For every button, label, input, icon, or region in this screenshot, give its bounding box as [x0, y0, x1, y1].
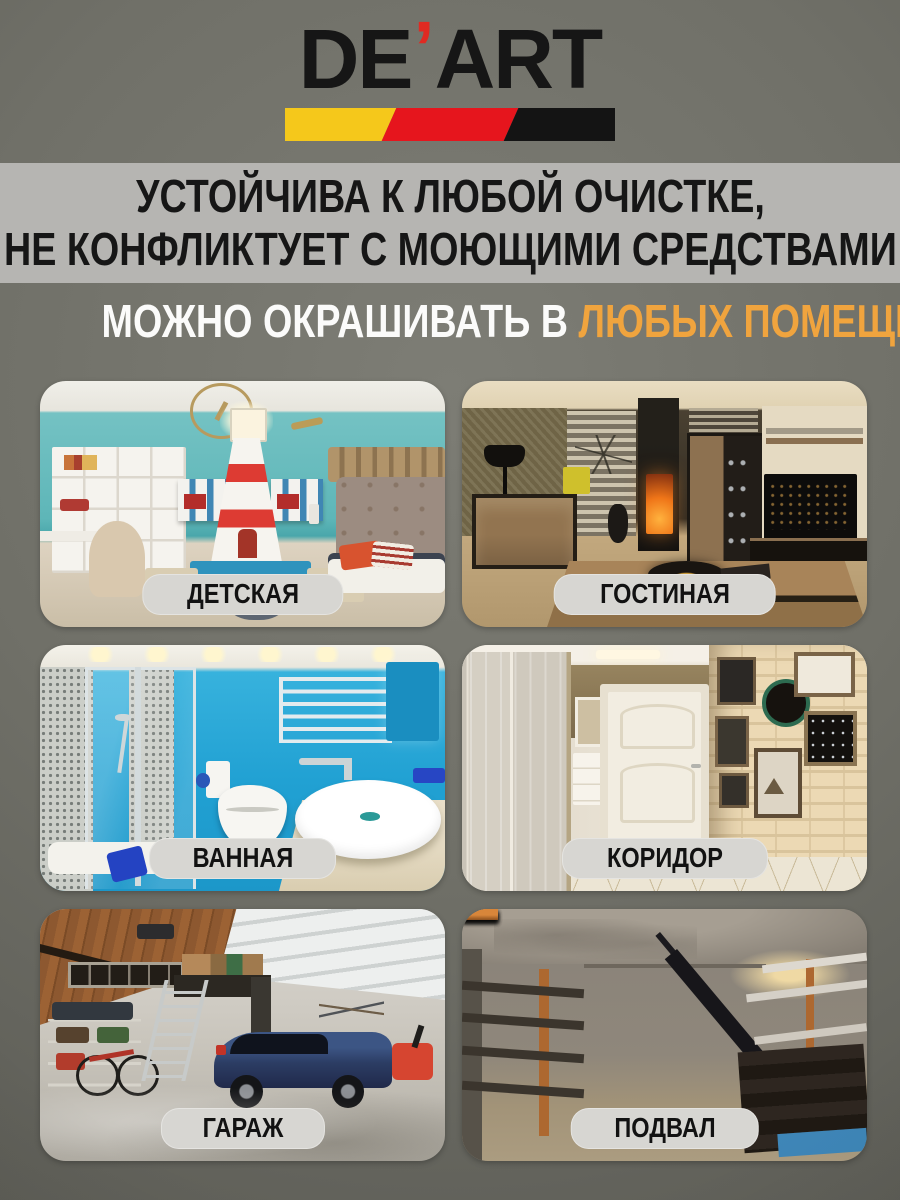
- logo-apostrophe: ’: [413, 15, 432, 83]
- brand-header: DE’ART: [0, 22, 900, 141]
- tv-stand: [750, 541, 867, 561]
- room-card-garage: ГАРАЖ: [40, 909, 445, 1161]
- go-flag-left: [184, 494, 206, 509]
- room-label: ГОСТИНАЯ: [600, 579, 730, 610]
- table-lamp: [484, 445, 525, 467]
- room-card-basement: ПОДВАЛ: [462, 909, 867, 1161]
- stripe-red-segment: [382, 108, 519, 141]
- ceiling-light: [596, 650, 661, 659]
- ceiling-lights: [72, 647, 412, 662]
- towel-right: [413, 768, 445, 783]
- room-label: ГАРАЖ: [202, 1113, 283, 1144]
- rooms-grid: ДЕТСКАЯ: [40, 381, 867, 1161]
- gear-box: [56, 1027, 88, 1042]
- room-label-pill: ПОДВАЛ: [570, 1108, 759, 1149]
- room-label: ДЕТСКАЯ: [186, 579, 298, 610]
- picture-frame: [804, 711, 857, 766]
- sideboard: [472, 494, 577, 568]
- room-card-bathroom: ВАННАЯ: [40, 645, 445, 891]
- fireplace-fire: [646, 474, 672, 533]
- door-panel-bottom: [620, 763, 695, 823]
- headline-line2: НЕ КОНФЛИКТУЕТ С МОЮЩИМИ СРЕДСТВАМИ: [4, 223, 897, 276]
- wall-tools: [319, 992, 384, 1027]
- door-panel-top: [620, 704, 695, 749]
- room-card-kids: ДЕТСКАЯ: [40, 381, 445, 627]
- lighthouse-lantern: [230, 408, 266, 442]
- room-label-pill: ДЕТСКАЯ: [142, 574, 343, 615]
- claim-highlight: ЛЮБЫХ ПОМЕЩЕНИЯХ: [579, 295, 900, 347]
- toy-car: [60, 499, 88, 511]
- headline-line1: УСТОЙЧИВА К ЛЮБОЙ ОЧИСТКЕ,: [136, 170, 765, 223]
- picture-frame: [719, 773, 749, 809]
- stair-step: [462, 909, 498, 920]
- books: [64, 455, 96, 470]
- lighthouse-door: [238, 529, 256, 559]
- shower-head: [115, 714, 131, 721]
- floor-vase: [608, 504, 628, 543]
- go-flag-right: [277, 494, 299, 509]
- door-opener: [137, 924, 173, 939]
- claim-prefix: МОЖНО ОКРАШИВАТЬ В: [102, 295, 579, 347]
- wall-shelf: [766, 438, 863, 444]
- glass-cabinet: [725, 455, 749, 553]
- claim-line: МОЖНО ОКРАШИВАТЬ В ЛЮБЫХ ПОМЕЩЕНИЯХ: [0, 297, 900, 345]
- paper-roll: [196, 773, 210, 788]
- room-label-pill: КОРИДОР: [561, 838, 767, 879]
- pillow-striped: [371, 541, 414, 570]
- stripe-black-segment: [504, 108, 615, 141]
- logo-suffix: ART: [435, 12, 602, 106]
- stripe-yellow-segment: [285, 108, 396, 141]
- room-label-pill: ВАННАЯ: [149, 838, 337, 879]
- picture-frame: [794, 652, 855, 697]
- lamp-stem: [503, 467, 507, 494]
- room-label: ПОДВАЛ: [614, 1113, 715, 1144]
- room-label-pill: ГАРАЖ: [160, 1108, 324, 1149]
- gear-bag: [52, 1002, 133, 1020]
- frame-art-triangle: [764, 778, 784, 794]
- wall-lamp: [291, 417, 324, 431]
- car-windows: [230, 1034, 327, 1054]
- storage-boxes: [182, 954, 263, 974]
- door-handle: [691, 764, 702, 768]
- headline-band: УСТОЙЧИВА К ЛЮБОЙ ОЧИСТКЕ, НЕ КОНФЛИКТУЕ…: [0, 163, 900, 283]
- room-label-pill: ГОСТИНАЯ: [553, 574, 776, 615]
- brand-logo: DE’ART: [299, 22, 601, 98]
- ladder: [142, 980, 210, 1081]
- yellow-vase: [563, 467, 589, 494]
- wall-switch: [309, 504, 319, 524]
- shelf-post-orange: [806, 959, 814, 1060]
- poster: DE’ART УСТОЙЧИВА К ЛЮБОЙ ОЧИСТКЕ, НЕ КОН…: [0, 0, 900, 1200]
- room-label: КОРИДОР: [607, 843, 723, 874]
- faucet-valve: [344, 758, 352, 780]
- room-card-living: ГОСТИНАЯ: [462, 381, 867, 627]
- mirror-cabinet: [386, 662, 439, 741]
- picture-frame: [717, 657, 755, 705]
- chair: [89, 521, 146, 597]
- logo-prefix: DE: [299, 12, 412, 106]
- gear-green: [97, 1027, 129, 1042]
- mirror-streaks: [470, 652, 563, 891]
- tv-screen: [770, 481, 851, 530]
- sink-drain: [360, 812, 380, 821]
- car-taillight: [216, 1045, 226, 1055]
- picture-frame: [715, 716, 749, 766]
- brand-flag-stripe-icon: [285, 108, 615, 141]
- towel-rail: [279, 677, 392, 743]
- room-label: ВАННАЯ: [192, 843, 293, 874]
- room-card-corridor: КОРИДОР: [462, 645, 867, 891]
